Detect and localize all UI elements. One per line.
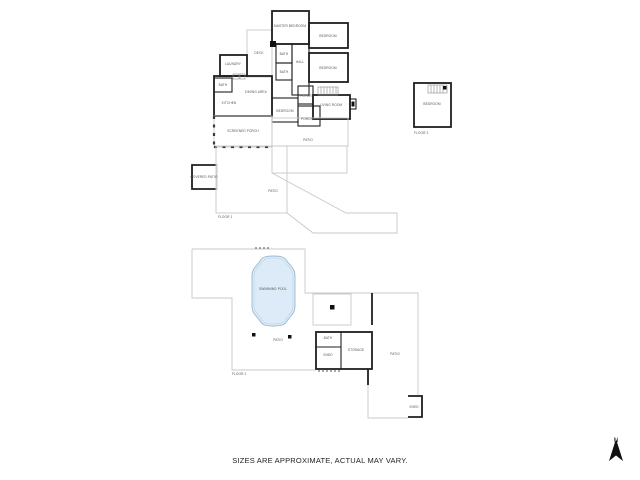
swimming-pool bbox=[252, 256, 295, 326]
room-label-bath-middle: BATH bbox=[280, 70, 289, 74]
room-label-storage: STORAGE bbox=[348, 348, 364, 352]
room-label-kitchen: KITCHEN bbox=[222, 101, 237, 105]
room-label-bath-upper: BATH bbox=[280, 52, 289, 56]
room-label-foyer: FOYER bbox=[300, 94, 312, 98]
compass: N bbox=[604, 437, 628, 473]
room-label-living-room: LIVING ROOM bbox=[320, 103, 343, 107]
room-label-master-bedroom: MASTER BEDROOM bbox=[274, 24, 306, 28]
stairs bbox=[318, 87, 338, 95]
hall-walls bbox=[292, 44, 309, 95]
pool-patio-outline bbox=[192, 248, 418, 418]
patio-terrace-outline bbox=[216, 146, 287, 213]
disclaimer-note: SIZES ARE APPROXIMATE, ACTUAL MAY VARY. bbox=[0, 456, 640, 465]
closet-marker bbox=[443, 86, 447, 90]
room-label-screened-porch: SCREENED PORCH bbox=[227, 129, 259, 133]
patio-post bbox=[288, 335, 292, 339]
room-label-shed-pool: SHED bbox=[323, 353, 333, 357]
well-area bbox=[313, 294, 351, 325]
main-house-plan bbox=[214, 11, 356, 147]
living-room-walls bbox=[313, 95, 350, 119]
room-label-deck: DECK bbox=[254, 51, 264, 55]
room-label-bedroom-detached: BEDROOM bbox=[423, 102, 440, 106]
room-label-covered-patio: COVERED PATIO bbox=[190, 175, 217, 179]
room-label-floor-2: FLOOR 2 bbox=[414, 131, 428, 135]
floorplan-page: MASTER BEDROOMBEDROOMBEDROOMBATHHALLBATH… bbox=[0, 0, 640, 480]
room-label-floor-1-pool: FLOOR 1 bbox=[232, 372, 246, 376]
porch-walls bbox=[298, 106, 320, 126]
room-label-porch: PORCH bbox=[301, 117, 314, 121]
room-label-patio-pool: PATIO bbox=[273, 338, 283, 342]
room-label-bedroom-s: BEDROOM bbox=[276, 109, 293, 113]
room-label-dining-area: DINING AREA bbox=[245, 90, 267, 94]
room-label-patio-rear: PATIO bbox=[303, 138, 313, 142]
room-label-swimming-pool: SWIMMING POOL bbox=[259, 287, 287, 291]
chimney bbox=[270, 41, 276, 47]
room-label-bedroom-e: BEDROOM bbox=[319, 66, 336, 70]
patio-upper-right-outline bbox=[272, 146, 347, 173]
room-label-bath-pool: BATH bbox=[324, 336, 333, 340]
room-label-floor-1-mid: FLOOR 1 bbox=[218, 215, 232, 219]
patio-post bbox=[252, 333, 256, 337]
room-label-patio-mid: PATIO bbox=[268, 189, 278, 193]
north-arrow-icon bbox=[604, 437, 628, 463]
pool-level-plan bbox=[192, 248, 422, 418]
patio-level-plan bbox=[192, 146, 397, 233]
room-label-patio-right: PATIO bbox=[390, 352, 400, 356]
room-label-hall: HALL bbox=[296, 60, 305, 64]
walkway-outline bbox=[272, 173, 397, 233]
floorplan-drawing: MASTER BEDROOMBEDROOMBEDROOMBATHHALLBATH… bbox=[0, 0, 640, 480]
room-label-bath-lower: BATH bbox=[219, 83, 228, 87]
room-label-shed-small: SHED bbox=[409, 405, 419, 409]
room-label-laundry: LAUNDRY bbox=[225, 62, 242, 66]
room-label-bedroom-ne: BEDROOM bbox=[319, 34, 336, 38]
kitchen-dining-walls bbox=[214, 76, 272, 116]
